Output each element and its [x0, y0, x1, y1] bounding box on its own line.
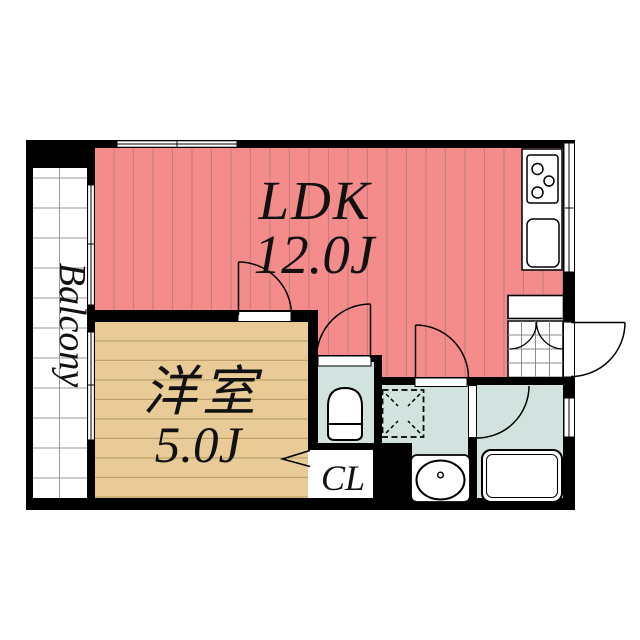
window-bathroom	[564, 398, 575, 437]
closet-label: CL	[321, 458, 365, 498]
opening-closet	[309, 451, 318, 498]
shoe-cabinet-icon	[508, 296, 564, 319]
stove-icon	[527, 155, 558, 203]
opening-front-door	[564, 322, 575, 377]
western-room-label: 洋室	[143, 362, 263, 422]
floor-plan: LDK 12.0J 洋室 5.0J CL Balcony	[0, 0, 640, 640]
kitchen-counter	[522, 149, 562, 270]
kitchen-sink-icon	[527, 219, 559, 267]
faucet-icon	[438, 472, 444, 478]
opening-toilet-door	[318, 356, 371, 366]
balcony-label: Balcony	[51, 263, 93, 388]
ldk-label: LDK	[258, 170, 373, 231]
window-kitchen	[564, 143, 575, 272]
opening-bathroom-door	[469, 386, 477, 438]
opening-western-door	[238, 312, 291, 322]
bathtub-icon	[482, 450, 562, 502]
floor-plan-drawing: LDK 12.0J 洋室 5.0J CL Balcony	[0, 0, 640, 640]
entrance-tile	[508, 321, 564, 378]
washbasin-icon	[411, 455, 470, 502]
ldk-area: 12.0J	[254, 224, 377, 285]
opening-washroom-door	[415, 378, 467, 387]
window-top	[117, 141, 237, 147]
toilet-icon	[328, 388, 362, 440]
western-room-area: 5.0J	[155, 418, 244, 474]
